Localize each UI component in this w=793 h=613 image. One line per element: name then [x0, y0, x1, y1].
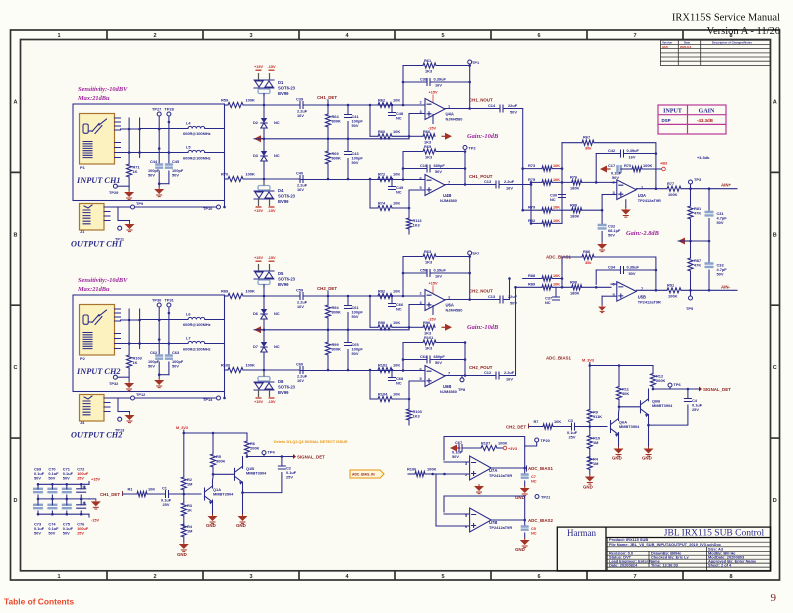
svg-text:800K: 800K [332, 119, 341, 124]
svg-text:50V: 50V [352, 351, 359, 356]
svg-text:C14: C14 [488, 103, 496, 108]
svg-text:100K: 100K [427, 467, 436, 472]
svg-text:NC: NC [550, 197, 556, 202]
svg-text:D6: D6 [253, 311, 259, 316]
svg-text:+15V: +15V [254, 256, 263, 260]
svg-text:10K: 10K [393, 129, 400, 134]
svg-text:C12: C12 [484, 370, 492, 375]
svg-text:600R@100MHz: 600R@100MHz [183, 347, 211, 352]
svg-text:NC: NC [396, 116, 402, 121]
svg-text:D3: D3 [253, 153, 259, 158]
svg-text:SOT6-23: SOT6-23 [278, 385, 296, 390]
svg-text:TP21: TP21 [541, 495, 551, 500]
svg-text:16V: 16V [506, 186, 513, 191]
svg-text:16V: 16V [297, 113, 304, 118]
svg-text:100K: 100K [498, 441, 507, 446]
svg-text:TP2412aT9R: TP2412aT9R [638, 198, 661, 203]
svg-text:R89: R89 [528, 282, 536, 287]
svg-text:C17: C17 [608, 163, 615, 168]
svg-text:C13: C13 [484, 179, 492, 184]
svg-text:C42: C42 [608, 148, 616, 153]
svg-text:1K3: 1K3 [425, 346, 433, 351]
svg-text:R74: R74 [378, 201, 386, 206]
svg-text:D8: D8 [278, 379, 284, 384]
svg-text:25V: 25V [286, 475, 293, 480]
svg-text:16V: 16V [435, 274, 442, 279]
svg-text:P2: P2 [80, 356, 86, 361]
svg-text:+15V: +15V [254, 400, 263, 404]
svg-text:TP31: TP31 [165, 298, 175, 303]
svg-text:+3.3db: +3.3db [697, 155, 710, 160]
svg-text:10K: 10K [553, 219, 560, 223]
svg-text:BV99: BV99 [278, 199, 289, 204]
svg-text:C67: C67 [455, 440, 462, 445]
svg-text:TP1: TP1 [472, 60, 480, 65]
svg-text:1: 1 [57, 33, 60, 39]
svg-text:C60: C60 [296, 362, 303, 367]
svg-text:16V: 16V [506, 377, 513, 382]
svg-text:D: D [14, 498, 18, 504]
svg-text:D4: D4 [278, 188, 284, 193]
svg-text:C44: C44 [150, 159, 158, 164]
svg-text:TP2412aT9R: TP2412aT9R [638, 300, 661, 305]
svg-text:100K: 100K [246, 98, 255, 103]
svg-text:TP28: TP28 [165, 107, 175, 112]
svg-text:C3: C3 [568, 418, 574, 423]
svg-text:NC: NC [396, 381, 402, 386]
svg-text:ADC_BIAS1: ADC_BIAS1 [546, 356, 571, 361]
svg-text:INPUT CH2: INPUT CH2 [76, 367, 121, 376]
svg-text:D5: D5 [278, 271, 284, 276]
svg-text:TP27: TP27 [152, 107, 161, 112]
svg-text:SIGNAL_DET: SIGNAL_DET [703, 387, 731, 392]
svg-text:2: 2 [153, 574, 156, 580]
svg-text:-43.3dB: -43.3dB [697, 118, 713, 123]
svg-text:50V: 50V [48, 476, 55, 481]
svg-text:C1: C1 [162, 486, 168, 491]
svg-text:-15V: -15V [91, 519, 99, 523]
svg-text:R89: R89 [221, 289, 229, 294]
svg-text:0.39uF: 0.39uF [627, 265, 640, 270]
svg-text:100K: 100K [643, 163, 652, 168]
svg-text:C40: C40 [296, 171, 303, 176]
svg-text:100K: 100K [246, 172, 255, 177]
svg-text:10K: 10K [393, 363, 400, 368]
svg-text:40K: 40K [622, 391, 629, 396]
svg-text:10K: 10K [393, 392, 400, 397]
svg-text:R91: R91 [667, 283, 675, 288]
svg-text:100uF: 100uF [77, 472, 89, 476]
svg-text:Gain:-2.8dB: Gain:-2.8dB [626, 230, 660, 237]
svg-text:GND: GND [236, 523, 246, 528]
svg-text:1K: 1K [133, 360, 138, 365]
svg-text:GND: GND [612, 456, 622, 461]
svg-text:C59: C59 [296, 288, 304, 293]
svg-text:100K: 100K [668, 192, 677, 197]
svg-text:D2: D2 [253, 120, 259, 125]
svg-text:P1: P1 [80, 165, 86, 170]
svg-text:25V: 25V [163, 502, 170, 507]
svg-text:100K: 100K [246, 289, 255, 294]
svg-text:30k: 30k [585, 261, 592, 265]
svg-text:R80: R80 [570, 202, 577, 207]
svg-text:9: 9 [771, 592, 777, 604]
svg-text:BV99: BV99 [278, 282, 289, 287]
svg-text:Sensitivity:-10dBV: Sensitivity:-10dBV [78, 86, 128, 93]
svg-text:R79: R79 [528, 205, 536, 210]
svg-text:SOT6-23: SOT6-23 [278, 277, 296, 282]
svg-text:47K: 47K [694, 263, 701, 268]
svg-text:TP30: TP30 [152, 298, 161, 303]
svg-text:C64: C64 [420, 354, 428, 359]
svg-text:C62: C62 [150, 350, 158, 355]
svg-text:MMBT3904: MMBT3904 [652, 403, 673, 408]
svg-text:2020-8-3: 2020-8-3 [680, 45, 692, 49]
svg-text:SOT6-23: SOT6-23 [278, 194, 296, 199]
svg-text:Harman: Harman [567, 528, 596, 538]
svg-text:25V: 25V [77, 532, 84, 536]
svg-text:TP3: TP3 [694, 177, 702, 182]
svg-text:+15V: +15V [429, 91, 438, 95]
svg-text:NJM4580: NJM4580 [440, 389, 457, 394]
svg-text:MMBT3904: MMBT3904 [619, 424, 640, 429]
svg-text:6: 6 [537, 33, 540, 39]
svg-text:NC: NC [274, 311, 280, 316]
svg-text:22uF: 22uF [508, 103, 518, 108]
svg-text:16V: 16V [297, 378, 304, 383]
svg-text:CH1_DET: CH1_DET [317, 95, 337, 100]
svg-text:-15V: -15V [267, 65, 275, 69]
svg-text:NC: NC [274, 153, 280, 158]
svg-text:M_3V3: M_3V3 [582, 359, 594, 363]
svg-text:1M: 1M [593, 461, 598, 466]
svg-text:AIN+: AIN+ [721, 183, 732, 188]
svg-text:100K: 100K [246, 363, 255, 368]
svg-text:R61: R61 [424, 58, 432, 63]
svg-text:2.2uF: 2.2uF [504, 179, 515, 184]
svg-text:TP5: TP5 [686, 306, 694, 311]
svg-text:A: A [773, 100, 777, 106]
svg-text:600R@100MHz: 600R@100MHz [183, 322, 211, 327]
svg-text:+3V3: +3V3 [508, 447, 517, 451]
svg-text:10K: 10K [393, 172, 400, 177]
svg-text:25V: 25V [692, 407, 699, 412]
svg-text:Max:21dBu: Max:21dBu [77, 286, 110, 293]
svg-text:+15V: +15V [254, 65, 263, 69]
svg-text:50V: 50V [717, 272, 724, 277]
svg-text:1K3: 1K3 [425, 69, 433, 74]
svg-text:C16: C16 [420, 163, 428, 168]
svg-text:R59: R59 [221, 98, 229, 103]
svg-text:25V: 25V [569, 435, 576, 440]
svg-text:50V: 50V [435, 360, 442, 365]
svg-text:C56: C56 [420, 268, 428, 273]
svg-text:R63: R63 [424, 249, 432, 254]
svg-text:1M: 1M [187, 529, 192, 534]
svg-text:0.39uF: 0.39uF [434, 77, 447, 82]
svg-text:0A/0: 0A/0 [662, 45, 668, 49]
svg-text:R90: R90 [378, 320, 385, 325]
svg-text:R90: R90 [570, 279, 577, 284]
svg-text:TP12: TP12 [136, 392, 146, 397]
svg-text:50V: 50V [435, 169, 442, 174]
svg-text:C13: C13 [488, 294, 496, 299]
svg-text:1K3: 1K3 [425, 260, 433, 265]
svg-text:Version A - 11/20: Version A - 11/20 [707, 26, 780, 37]
svg-text:R92: R92 [378, 289, 386, 294]
svg-text:R107: R107 [481, 441, 490, 446]
svg-text:50V: 50V [717, 220, 724, 225]
svg-text:3: 3 [249, 33, 252, 39]
svg-text:C: C [773, 365, 777, 371]
svg-text:GND: GND [583, 485, 593, 490]
svg-text:680pF: 680pF [434, 354, 446, 359]
svg-text:OUTPUT CH2: OUTPUT CH2 [71, 431, 122, 440]
svg-text:SOT6-23: SOT6-23 [278, 86, 296, 91]
svg-text:R86: R86 [583, 249, 591, 254]
svg-text:TP2412aT9R: TP2412aT9R [489, 525, 512, 530]
svg-text:TP8: TP8 [458, 387, 466, 392]
svg-text:D1: D1 [278, 80, 284, 85]
svg-text:CH2_DET: CH2_DET [317, 286, 337, 291]
svg-text:10K: 10K [553, 164, 560, 168]
svg-text:INPUT: INPUT [663, 108, 682, 114]
svg-text:TP14: TP14 [203, 397, 213, 402]
svg-text:5: 5 [441, 574, 444, 580]
svg-text:+15V: +15V [429, 282, 438, 286]
svg-text:16V: 16V [297, 187, 304, 192]
svg-text:MMBT3904: MMBT3904 [213, 492, 234, 497]
svg-text:6: 6 [537, 574, 540, 580]
svg-text:R62: R62 [378, 98, 386, 103]
svg-text:INPUT CH1: INPUT CH1 [76, 176, 121, 185]
svg-text:R60: R60 [378, 129, 385, 134]
svg-text:L7: L7 [186, 336, 191, 341]
svg-text:10K: 10K [553, 178, 560, 182]
svg-text:300K: 300K [216, 459, 225, 464]
svg-text:TP9: TP9 [136, 201, 144, 206]
svg-text:50V: 50V [148, 173, 155, 178]
svg-text:R77: R77 [667, 181, 674, 186]
svg-text:+15V: +15V [254, 209, 263, 213]
svg-text:16V: 16V [297, 304, 304, 309]
svg-text:2.2uF: 2.2uF [504, 370, 515, 375]
svg-text:R67: R67 [583, 135, 590, 140]
svg-text:GND: GND [177, 552, 187, 557]
svg-text:7: 7 [448, 180, 450, 185]
svg-text:50V: 50V [352, 314, 359, 319]
svg-text:30k: 30k [585, 147, 592, 151]
svg-text:50V: 50V [352, 123, 359, 128]
svg-text:16V: 16V [435, 83, 442, 88]
svg-text:GND: GND [206, 523, 216, 528]
svg-text:Sheet: 2 of 4: Sheet: 2 of 4 [708, 562, 732, 567]
svg-text:47K: 47K [694, 211, 701, 216]
svg-text:50V: 50V [48, 531, 55, 536]
svg-text:16V: 16V [629, 155, 636, 160]
svg-text:200K: 200K [656, 378, 665, 383]
svg-text:911K: 911K [593, 414, 602, 419]
svg-text:50V: 50V [608, 233, 615, 238]
svg-text:C38: C38 [420, 77, 428, 82]
svg-text:Max:21dBu: Max:21dBu [77, 95, 110, 102]
svg-text:C76: C76 [77, 522, 85, 527]
svg-text:Sensitivity:-10dBV: Sensitivity:-10dBV [78, 277, 128, 284]
svg-text:5: 5 [441, 33, 444, 39]
svg-text:NC: NC [274, 344, 280, 349]
svg-text:TP29: TP29 [109, 190, 119, 195]
svg-text:NJM4580: NJM4580 [440, 198, 457, 203]
svg-text:MMBT3904: MMBT3904 [246, 471, 267, 476]
svg-text:-15V: -15V [267, 209, 275, 213]
svg-text:50V: 50V [352, 160, 359, 165]
svg-text:50V: 50V [34, 476, 41, 481]
svg-text:C7: C7 [531, 475, 536, 479]
svg-text:NJM4580: NJM4580 [446, 308, 463, 313]
svg-text:180K: 180K [570, 213, 579, 218]
svg-text:Gain:-10dB: Gain:-10dB [467, 324, 499, 331]
svg-text:R101: R101 [424, 335, 434, 340]
svg-text:0.39uF: 0.39uF [434, 268, 447, 273]
svg-text:800K: 800K [332, 347, 341, 352]
svg-text:C39: C39 [296, 97, 304, 102]
svg-text:Gain:-10dB: Gain:-10dB [467, 133, 499, 140]
svg-text:D: D [773, 498, 777, 504]
svg-text:0.39uF: 0.39uF [627, 148, 640, 153]
svg-text:R104: R104 [378, 392, 388, 397]
svg-text:M_3V3: M_3V3 [176, 426, 188, 430]
svg-text:8: 8 [729, 574, 732, 580]
svg-text:50V: 50V [510, 301, 517, 306]
svg-text:100uF: 100uF [77, 527, 89, 531]
svg-text:TP2412aT9R: TP2412aT9R [489, 473, 512, 478]
svg-text:50V: 50V [452, 454, 459, 459]
svg-text:+B3: +B3 [660, 162, 667, 166]
svg-text:GAIN: GAIN [699, 108, 715, 114]
svg-text:1K: 1K [133, 169, 138, 174]
svg-text:OUTPUT CH1: OUTPUT CH1 [71, 240, 122, 249]
svg-text:1K3: 1K3 [413, 223, 421, 228]
svg-text:1M: 1M [593, 440, 598, 445]
svg-text:-15V: -15V [267, 400, 275, 404]
svg-text:600R@100MHz: 600R@100MHz [183, 156, 211, 161]
svg-text:R96: R96 [423, 320, 431, 325]
svg-text:R102: R102 [378, 363, 388, 368]
svg-text:3: 3 [249, 574, 252, 580]
svg-text:C: C [14, 365, 18, 371]
svg-text:1K: 1K [187, 508, 192, 513]
svg-text:TP6: TP6 [674, 382, 682, 387]
svg-text:50V: 50V [629, 271, 636, 276]
svg-text:Description of Changes/Notes: Description of Changes/Notes [712, 41, 752, 45]
svg-text:Table of Contents: Table of Contents [4, 597, 74, 607]
svg-text:SIGNAL_DET: SIGNAL_DET [297, 455, 325, 460]
svg-text:Time: 13:36:03: Time: 13:36:03 [651, 562, 679, 567]
svg-text:ADC_BIAS2: ADC_BIAS2 [528, 518, 553, 523]
svg-text:R70: R70 [221, 172, 228, 177]
svg-text:680pF: 680pF [434, 163, 446, 168]
svg-text:-15V: -15V [267, 256, 275, 260]
svg-text:200K: 200K [250, 446, 259, 451]
svg-text:7: 7 [633, 33, 636, 39]
svg-text:NC: NC [274, 120, 280, 125]
svg-text:1K3: 1K3 [413, 414, 421, 419]
svg-text:CH1_NOUT: CH1_NOUT [469, 98, 493, 103]
svg-text:CH1_DET: CH1_DET [100, 492, 120, 497]
svg-text:NC: NC [531, 532, 537, 536]
svg-text:JBL IRX115 SUB Control: JBL IRX115 SUB Control [664, 529, 765, 539]
svg-text:10K: 10K [148, 487, 155, 492]
svg-text:1M: 1M [187, 482, 192, 487]
svg-text:R88: R88 [528, 273, 536, 278]
svg-text:TP20: TP20 [541, 438, 550, 443]
svg-text:10K: 10K [393, 289, 400, 294]
svg-text:+15V: +15V [91, 478, 100, 482]
svg-text:R100: R100 [221, 363, 230, 368]
svg-text:10K: 10K [553, 274, 560, 278]
svg-text:AIN-: AIN- [721, 284, 731, 289]
svg-text:ADC_BIAS_IN: ADC_BIAS_IN [352, 473, 375, 477]
svg-text:C63: C63 [172, 350, 180, 355]
svg-text:IRX115S Service Manual: IRX115S Service Manual [672, 13, 780, 24]
svg-text:1: 1 [57, 574, 60, 580]
svg-text:50V: 50V [63, 476, 70, 481]
svg-text:7: 7 [633, 574, 636, 580]
svg-text:GND: GND [642, 456, 652, 461]
svg-text:D7: D7 [253, 344, 258, 349]
svg-text:B: B [14, 232, 18, 238]
svg-text:File Name: JBL_V8_SUB_INPUT&: File Name: JBL_V8_SUB_INPUT&OUTPUT_2019_… [609, 542, 722, 547]
svg-text:10K: 10K [554, 419, 561, 424]
svg-text:800K: 800K [332, 156, 341, 161]
svg-text:TP10: TP10 [203, 206, 212, 211]
svg-text:C72: C72 [77, 467, 85, 472]
svg-text:C5: C5 [531, 527, 536, 531]
svg-text:R7: R7 [534, 419, 539, 424]
svg-text:50V: 50V [63, 531, 70, 536]
svg-text:B: B [773, 232, 777, 238]
svg-text:NC: NC [396, 190, 402, 195]
svg-text:NC: NC [545, 300, 551, 305]
svg-text:TP32: TP32 [109, 381, 119, 386]
svg-text:R106: R106 [407, 467, 417, 472]
svg-text:C34: C34 [608, 265, 616, 270]
svg-text:R72: R72 [378, 172, 386, 177]
svg-text:TP4: TP4 [268, 450, 276, 455]
svg-text:800K: 800K [332, 310, 341, 315]
svg-text:10K: 10K [393, 201, 400, 206]
svg-text:R82: R82 [528, 218, 536, 223]
svg-text:TP2: TP2 [469, 146, 477, 151]
svg-text:R76: R76 [570, 175, 578, 180]
svg-text:180K: 180K [570, 186, 579, 191]
svg-text:2: 2 [153, 33, 156, 39]
svg-text:50V: 50V [510, 110, 517, 115]
svg-text:BV99: BV99 [278, 91, 289, 96]
svg-text:GND: GND [515, 547, 525, 552]
svg-text:BV99: BV99 [278, 390, 289, 395]
svg-text:Delete D1,Q2,Q3 SIGNAL DETECT: Delete D1,Q2,Q3 SIGNAL DETECT ISSUE [274, 440, 348, 444]
svg-text:50V: 50V [172, 173, 179, 178]
svg-text:7: 7 [448, 371, 450, 376]
svg-text:A: A [14, 100, 18, 106]
svg-text:Date: 20200824: Date: 20200824 [609, 562, 638, 567]
svg-text:TP7: TP7 [472, 251, 479, 256]
svg-text:10K: 10K [393, 320, 400, 325]
svg-text:R1: R1 [128, 487, 134, 492]
svg-text:CH2_NOUT: CH2_NOUT [469, 289, 493, 294]
svg-text:DSP: DSP [662, 118, 671, 123]
